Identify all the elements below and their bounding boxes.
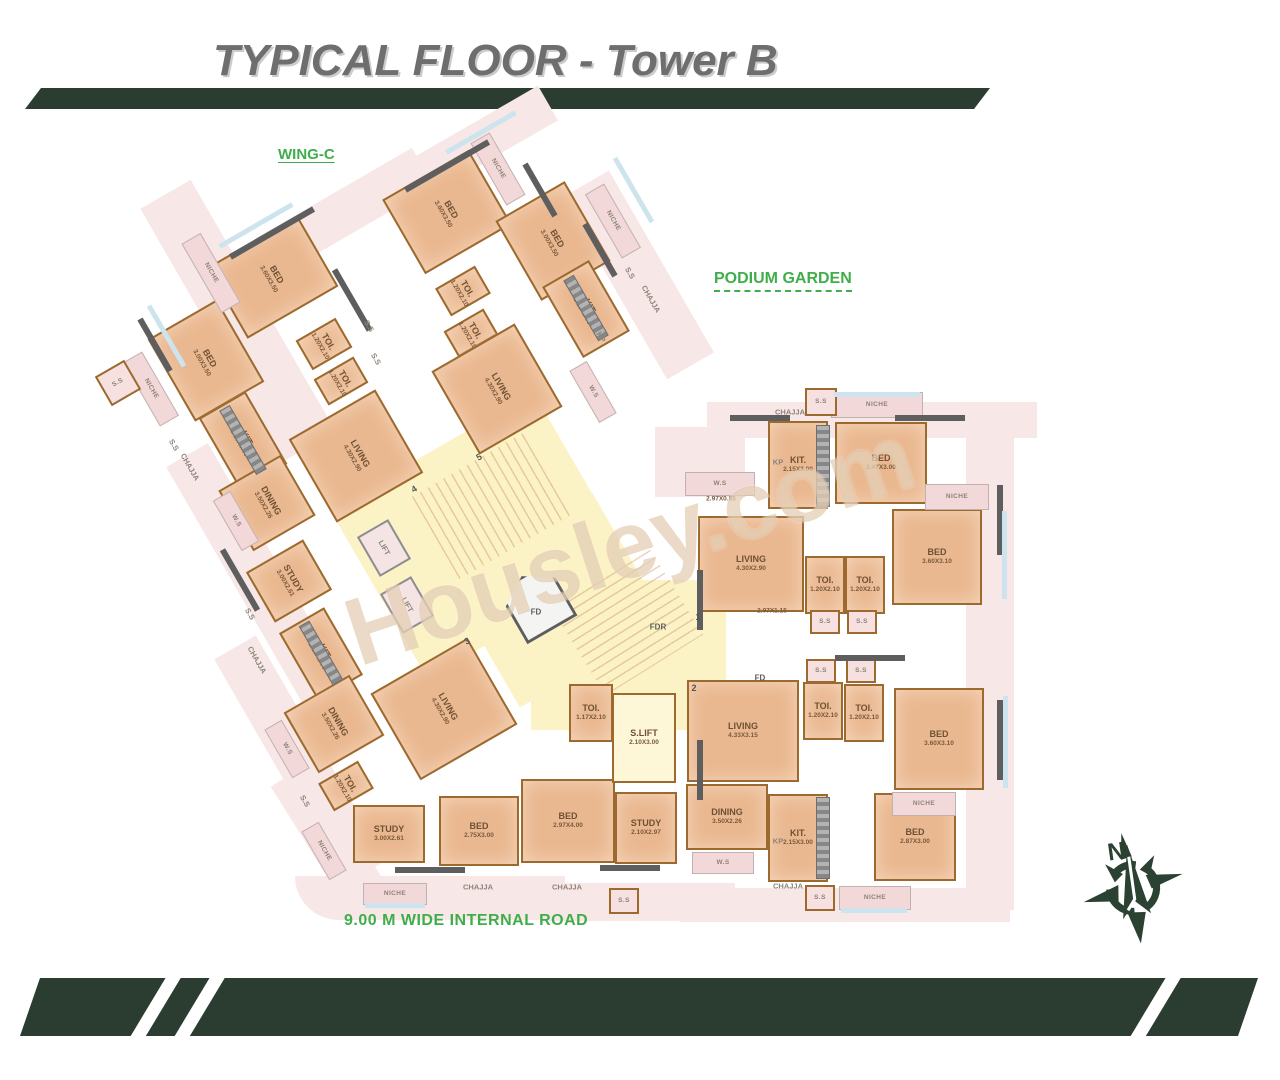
plan-wall bbox=[697, 570, 703, 630]
room-bed: BED3.60X3.10 bbox=[894, 688, 984, 790]
internal-road-label: 9.00 M WIDE INTERNAL ROAD bbox=[344, 912, 588, 930]
room-name-label: BED bbox=[469, 822, 488, 832]
room-name-label: TOI. bbox=[582, 704, 599, 714]
room-name-label: NICHE bbox=[315, 840, 332, 863]
room-living: LIVING4.30X2.90 bbox=[698, 516, 804, 612]
room-dimension-label: 4.30X2.90 bbox=[429, 697, 450, 726]
room-name-label: W.S bbox=[230, 514, 243, 529]
room-living: LIVING4.33X3.15 bbox=[687, 680, 799, 782]
room-name-label: S.S bbox=[814, 894, 826, 901]
banner-slash bbox=[170, 978, 227, 1036]
room-dimension-label: 4.33X3.15 bbox=[728, 732, 758, 739]
room-name-label: S.S bbox=[815, 667, 827, 674]
room-niche: NICHE bbox=[925, 484, 989, 510]
room-name-label: NICHE bbox=[202, 262, 219, 285]
plan-wall bbox=[895, 415, 965, 421]
room-name-label: S.S bbox=[819, 618, 831, 625]
room-name-label: S.S bbox=[111, 377, 125, 389]
room-name-label: TOI. bbox=[318, 332, 335, 352]
room-toi: TOI.1.20X2.10 bbox=[844, 684, 884, 742]
room-study: STUDY2.10X2.97 bbox=[615, 792, 677, 864]
room-name-label: NICHE bbox=[913, 800, 935, 807]
room-name-label: TOI. bbox=[465, 321, 482, 341]
plan-wall bbox=[835, 655, 905, 661]
room-dimension-label: 3.50X2.26 bbox=[712, 818, 742, 825]
room-dimension-label: 1.20X2.10 bbox=[808, 712, 838, 719]
room-name-label: DINING bbox=[258, 485, 282, 517]
room-name-label: LIFT bbox=[376, 539, 391, 557]
room-name-label: LIVING bbox=[435, 692, 459, 723]
room-dimension-label: 3.00X3.50 bbox=[191, 348, 212, 377]
room-name-label: TOI. bbox=[816, 576, 833, 586]
room-dimension-label: 2.10X2.97 bbox=[631, 829, 661, 836]
room-bed: BED2.97X4.00 bbox=[521, 779, 615, 863]
plan-sill bbox=[841, 908, 907, 913]
room-name-label: TOI. bbox=[335, 369, 352, 389]
room-name-label: NICHE bbox=[866, 401, 888, 408]
room-name-label: S.S bbox=[855, 667, 867, 674]
room-name-label: W.S bbox=[587, 385, 600, 400]
room-dimension-label: 4.30X2.90 bbox=[482, 377, 503, 406]
room-name-label: BED bbox=[200, 348, 218, 369]
room-s-lift: S.LIFT2.10X3.00 bbox=[612, 693, 676, 783]
room-name-label: BED bbox=[441, 200, 459, 221]
room-name-label: STUDY bbox=[374, 825, 405, 835]
room-name-label: NICHE bbox=[489, 158, 506, 181]
room-name-label: LIVING bbox=[347, 439, 371, 470]
room-name-label: W.S bbox=[716, 859, 729, 866]
room-s-s: S.S bbox=[846, 659, 876, 683]
room-name-label: STUDY bbox=[631, 819, 662, 829]
room-name-label: STUDY bbox=[280, 564, 304, 595]
room-w-s: W.S bbox=[569, 361, 616, 423]
room-name-label: BED bbox=[558, 812, 577, 822]
plan-appl bbox=[816, 797, 830, 879]
room-dimension-label: 2.15X3.00 bbox=[783, 466, 813, 473]
footer-banner bbox=[20, 978, 1258, 1036]
room-name-label: S.S bbox=[856, 618, 868, 625]
room-dimension-label: 2.97X4.00 bbox=[553, 822, 583, 829]
plan-mark-s-s: S.S bbox=[167, 438, 181, 453]
room-name-label: S.S bbox=[815, 398, 827, 405]
room-name-label: BED bbox=[266, 265, 284, 286]
room-name-label: TOI. bbox=[855, 704, 872, 714]
room-name-label: LIVING bbox=[736, 555, 766, 565]
room-dimension-label: 3.60X3.10 bbox=[922, 558, 952, 565]
room-name-label: TOI. bbox=[457, 279, 474, 299]
room-name-label: TOI. bbox=[856, 576, 873, 586]
room-name-label: BED bbox=[871, 454, 890, 464]
compass-north-letter: N bbox=[1106, 837, 1127, 866]
room-dimension-label: 3.60X3.50 bbox=[257, 265, 278, 294]
room-name-label: NICHE bbox=[946, 493, 968, 500]
room-niche: NICHE bbox=[892, 792, 956, 816]
room-name-label: NICHE bbox=[604, 210, 621, 233]
room-dimension-label: 2.10X3.00 bbox=[629, 739, 659, 746]
compass-rose: N bbox=[1075, 823, 1192, 950]
room-s-s: S.S bbox=[805, 388, 837, 416]
room-name-label: BED bbox=[905, 828, 924, 838]
room-name-label: DINING bbox=[711, 808, 743, 818]
room-name-label: TOI. bbox=[340, 774, 357, 794]
room-name-label: LIFT bbox=[399, 596, 414, 614]
room-w-s: W.S bbox=[692, 852, 754, 874]
room-name-label: NICHE bbox=[142, 378, 159, 401]
room-dimension-label: 2.75X3.00 bbox=[464, 832, 494, 839]
room-name-label: S.S bbox=[618, 897, 630, 904]
room-dimension-label: 2.15X3.00 bbox=[783, 839, 813, 846]
plan-appl bbox=[816, 425, 830, 507]
banner-slash bbox=[1126, 978, 1183, 1036]
plan-wall bbox=[697, 740, 703, 800]
room-w-s: W.S bbox=[685, 472, 755, 496]
room-s-s: S.S bbox=[810, 610, 840, 634]
room-dimension-label: 1.20X2.10 bbox=[326, 369, 347, 398]
room-dimension-label: 1.20X2.10 bbox=[331, 774, 352, 803]
room-name-label: W.S bbox=[713, 480, 726, 487]
room-name-label: BED bbox=[929, 730, 948, 740]
room-name-label: KIT. bbox=[790, 456, 806, 466]
room-name-label: NICHE bbox=[864, 894, 886, 901]
plan-sill bbox=[365, 903, 425, 908]
room-dimension-label: 1.20X2.10 bbox=[309, 332, 330, 361]
plan-wall bbox=[600, 865, 660, 871]
room-dimension-label: 1.20X2.10 bbox=[448, 279, 469, 308]
room-dimension-label: 3.00X2.61 bbox=[374, 835, 404, 842]
room-dimension-label: 1.20X2.10 bbox=[810, 586, 840, 593]
wing-c-label: WING-C bbox=[278, 146, 335, 163]
plan-sill bbox=[1003, 696, 1008, 788]
plan-wall bbox=[730, 415, 790, 421]
plan-sill bbox=[834, 392, 920, 397]
room-toi: TOI.1.17X2.10 bbox=[569, 684, 613, 742]
room-name-label: LIVING bbox=[728, 722, 758, 732]
plan-wall bbox=[395, 867, 465, 873]
podium-garden-label: PODIUM GARDEN bbox=[714, 270, 852, 292]
room-name-label: S.LIFT bbox=[630, 729, 658, 739]
room-dimension-label: 1.20X2.10 bbox=[850, 586, 880, 593]
banner-slash bbox=[126, 978, 183, 1036]
plan-sill bbox=[1002, 511, 1007, 599]
room-study: STUDY3.00X2.61 bbox=[353, 805, 425, 863]
room-dimension-label: 3.60X3.50 bbox=[432, 200, 453, 229]
room-dimension-label: 2.47X3.00 bbox=[866, 464, 896, 471]
room-dimension-label: 3.50X2.26 bbox=[252, 491, 273, 520]
room-dimension-label: 3.50X2.26 bbox=[319, 712, 340, 741]
room-dimension-label: 2.87X3.00 bbox=[900, 838, 930, 845]
room-name-label: BED bbox=[547, 229, 565, 250]
room-bed: BED2.75X3.00 bbox=[439, 796, 519, 866]
room-toi: TOI.1.20X2.10 bbox=[845, 556, 885, 614]
room-toi: TOI.1.20X2.10 bbox=[803, 682, 843, 740]
room-s-s: S.S bbox=[805, 885, 835, 911]
room-dimension-label: 3.60X3.10 bbox=[924, 740, 954, 747]
room-s-s: S.S bbox=[847, 610, 877, 634]
room-dimension-label: 1.17X2.10 bbox=[576, 714, 606, 721]
room-s-s: S.S bbox=[806, 659, 836, 683]
room-name-label: NICHE bbox=[384, 890, 406, 897]
room-toi: TOI.1.20X2.10 bbox=[805, 556, 845, 614]
room-name-label: BED bbox=[927, 548, 946, 558]
room-niche: NICHE bbox=[839, 886, 911, 910]
room-dimension-label: 4.30X2.90 bbox=[341, 444, 362, 473]
room-name-label: W.S bbox=[281, 742, 294, 757]
room-dimension-label: 4.30X2.90 bbox=[736, 565, 766, 572]
room-name-label: TOI. bbox=[814, 702, 831, 712]
room-dimension-label: 1.20X2.10 bbox=[849, 714, 879, 721]
room-dimension-label: 3.00X3.50 bbox=[538, 229, 559, 258]
room-name-label: KIT. bbox=[790, 829, 806, 839]
plan-mark-s-s: S.S bbox=[369, 352, 383, 367]
room-dimension-label: 3.00X2.61 bbox=[274, 569, 295, 598]
room-bed: BED3.60X3.10 bbox=[892, 509, 982, 605]
room-name-label: DINING bbox=[325, 706, 349, 738]
room-s-s: S.S bbox=[609, 888, 639, 914]
room-name-label: LIVING bbox=[488, 372, 512, 403]
room-bed: BED2.47X3.00 bbox=[835, 422, 927, 504]
compass-icon: N bbox=[1075, 823, 1192, 950]
